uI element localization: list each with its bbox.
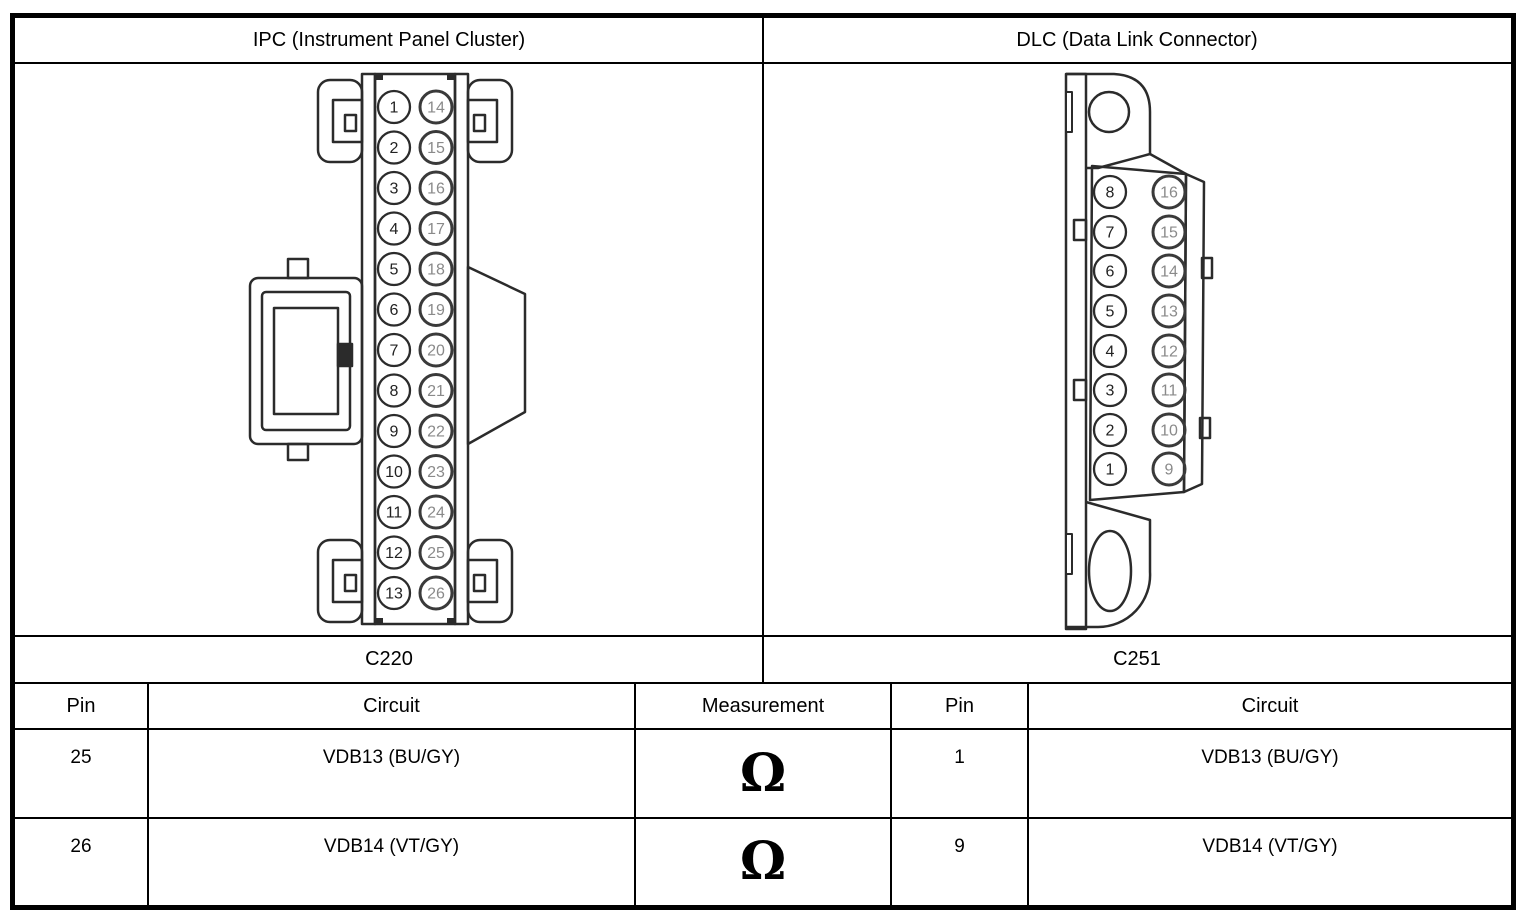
dlc-connector-drawing: 87654321161514131211109 — [763, 64, 1511, 635]
ipc-pin-number-6: 6 — [390, 302, 399, 319]
dlc-pin-grid: 87654321161514131211109 — [1094, 176, 1185, 485]
ipc-pin-number-16: 16 — [427, 181, 445, 198]
ipc-pin-number-19: 19 — [427, 302, 445, 319]
dlc-title: DLC (Data Link Connector) — [763, 18, 1511, 62]
dlc-pin-number-1: 1 — [1106, 462, 1115, 479]
dlc-pin-number-6: 6 — [1106, 264, 1115, 281]
outer-frame: IPC (Instrument Panel Cluster) DLC (Data… — [10, 13, 1516, 910]
ipc-pin-number-5: 5 — [390, 262, 399, 279]
dlc-bottom-bracket — [1066, 502, 1150, 627]
ipc-pin-number-23: 23 — [427, 464, 445, 481]
ipc-pin-grid: 1234567891011121314151617181920212223242… — [378, 91, 452, 609]
dlc-pin-number-3: 3 — [1106, 383, 1115, 400]
dlc-pin-number-8: 8 — [1106, 185, 1115, 202]
table-row: 26 VDB14 (VT/GY) Ω 9 VDB14 (VT/GY) — [15, 819, 1511, 905]
dlc-housing-outline — [1066, 74, 1212, 629]
ipc-pin-number-8: 8 — [390, 383, 399, 400]
table-row: 25 VDB13 (BU/GY) Ω 1 VDB13 (BU/GY) — [15, 730, 1511, 819]
dlc-connector-id: C251 — [763, 637, 1511, 682]
table-header-row: Pin Circuit Measurement Pin Circuit — [15, 682, 1511, 730]
dlc-pin-number-7: 7 — [1106, 225, 1115, 242]
dlc-pin-number-14: 14 — [1160, 264, 1178, 281]
header-circuit-ipc: Circuit — [147, 684, 634, 728]
ipc-pin-value: 25 — [15, 730, 147, 817]
ipc-pin-value: 26 — [15, 819, 147, 905]
ipc-pin-number-18: 18 — [427, 262, 445, 279]
ipc-pin-number-14: 14 — [427, 100, 445, 117]
header-circuit-dlc: Circuit — [1027, 684, 1511, 728]
dlc-pin-value: 1 — [890, 730, 1027, 817]
measurement-ohm-symbol: Ω — [634, 819, 890, 905]
ipc-pin-number-9: 9 — [390, 424, 399, 441]
ipc-pin-number-11: 11 — [386, 505, 403, 522]
dlc-pin-number-11: 11 — [1161, 383, 1178, 400]
header-measurement: Measurement — [634, 684, 890, 728]
dlc-circuit-value: VDB14 (VT/GY) — [1027, 819, 1511, 905]
dlc-pin-number-10: 10 — [1160, 423, 1178, 440]
dlc-pin-number-4: 4 — [1106, 344, 1115, 361]
dlc-pin-value: 9 — [890, 819, 1027, 905]
ipc-pin-number-4: 4 — [390, 221, 399, 238]
dlc-pin-number-5: 5 — [1106, 304, 1115, 321]
dlc-circuit-value: VDB13 (BU/GY) — [1027, 730, 1511, 817]
ipc-pin-number-17: 17 — [427, 221, 445, 238]
dlc-round-hole — [1089, 92, 1129, 132]
ipc-title: IPC (Instrument Panel Cluster) — [15, 18, 763, 62]
ipc-pin-number-12: 12 — [385, 545, 403, 562]
ipc-pin-number-2: 2 — [390, 140, 399, 157]
dlc-oval-hole — [1089, 531, 1131, 611]
dlc-pin-number-16: 16 — [1160, 185, 1178, 202]
measurement-ohm-symbol: Ω — [634, 730, 890, 817]
ipc-pin-number-26: 26 — [427, 586, 445, 603]
ipc-circuit-value: VDB13 (BU/GY) — [147, 730, 634, 817]
ipc-pin-number-10: 10 — [385, 464, 403, 481]
ipc-pin-number-7: 7 — [390, 343, 399, 360]
ipc-pin-number-21: 21 — [427, 383, 445, 400]
dlc-pin-number-12: 12 — [1160, 344, 1178, 361]
header-pin-dlc: Pin — [890, 684, 1027, 728]
dlc-pin-number-2: 2 — [1106, 423, 1115, 440]
dlc-pin-number-13: 13 — [1160, 304, 1178, 321]
center-divider — [762, 18, 764, 682]
ipc-pin-number-25: 25 — [427, 545, 445, 562]
dlc-pin-number-9: 9 — [1165, 462, 1174, 479]
ipc-circuit-value: VDB14 (VT/GY) — [147, 819, 634, 905]
ipc-pin-number-3: 3 — [390, 181, 399, 198]
dlc-pin-number-15: 15 — [1160, 225, 1178, 242]
ipc-side-flap — [468, 267, 525, 444]
header-pin-ipc: Pin — [15, 684, 147, 728]
pinout-diagram-page: IPC (Instrument Panel Cluster) DLC (Data… — [0, 0, 1526, 918]
ipc-pin-number-13: 13 — [385, 586, 403, 603]
ipc-housing-outline — [250, 74, 525, 624]
ipc-pin-number-24: 24 — [427, 505, 445, 522]
ipc-connector-id: C220 — [15, 637, 763, 682]
ipc-pin-number-20: 20 — [427, 343, 445, 360]
connector-id-row: C220 C251 — [15, 635, 1511, 682]
ipc-pin-number-22: 22 — [427, 424, 445, 441]
ipc-pin-number-1: 1 — [390, 100, 399, 117]
dlc-top-bracket — [1066, 74, 1150, 168]
connector-drawings: 1234567891011121314151617181920212223242… — [15, 64, 1511, 635]
ipc-connector-drawing: 1234567891011121314151617181920212223242… — [15, 64, 761, 635]
ipc-pin-number-15: 15 — [427, 140, 445, 157]
